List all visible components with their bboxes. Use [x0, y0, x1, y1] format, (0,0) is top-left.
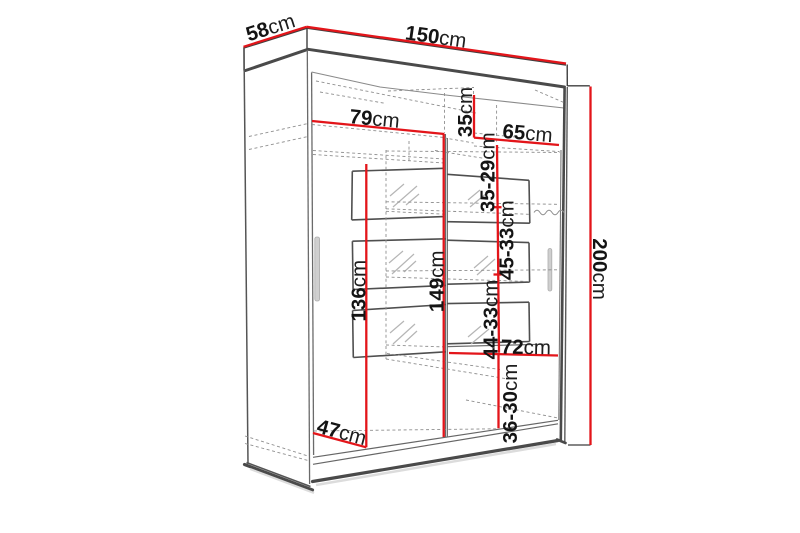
svg-text:36-30cm: 36-30cm — [499, 364, 522, 444]
svg-text:35-29cm: 35-29cm — [477, 132, 500, 212]
svg-text:65cm: 65cm — [502, 120, 554, 147]
svg-text:149cm: 149cm — [425, 251, 448, 313]
svg-text:45-33cm: 45-33cm — [496, 200, 519, 280]
svg-text:136cm: 136cm — [348, 260, 371, 322]
svg-text:44-33cm: 44-33cm — [480, 280, 503, 360]
svg-text:72cm: 72cm — [501, 336, 552, 360]
svg-text:47cm: 47cm — [314, 415, 368, 450]
svg-text:35cm: 35cm — [454, 87, 477, 137]
svg-text:150cm: 150cm — [404, 21, 468, 52]
svg-text:79cm: 79cm — [349, 105, 401, 133]
svg-text:200cm: 200cm — [588, 238, 611, 300]
svg-text:58cm: 58cm — [243, 9, 298, 46]
